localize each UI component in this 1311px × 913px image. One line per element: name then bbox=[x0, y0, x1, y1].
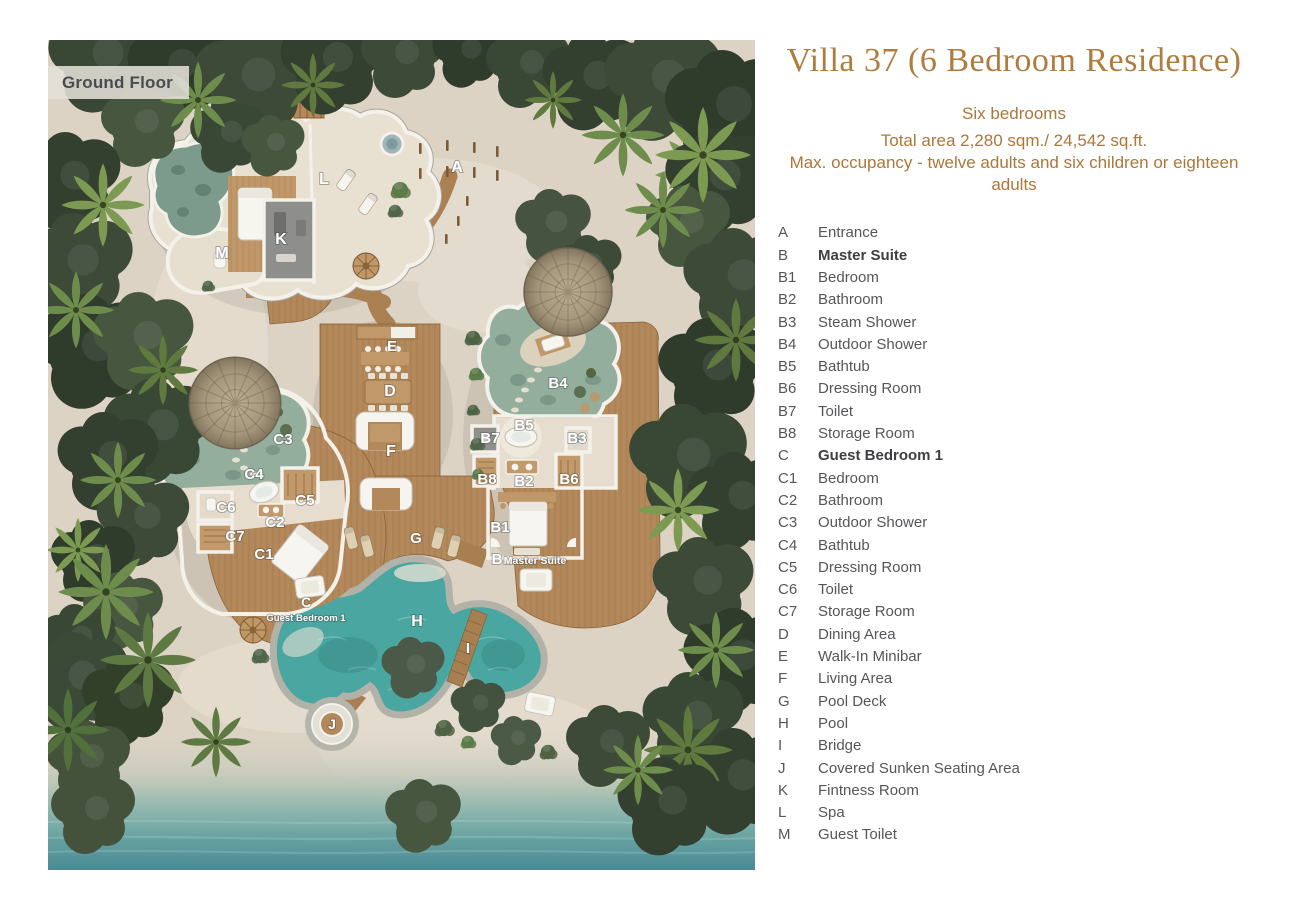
legend-label: Bathroom bbox=[818, 291, 1253, 308]
legend-row: B3 Steam Shower bbox=[778, 314, 1253, 336]
legend-label: Dining Area bbox=[818, 626, 1253, 643]
plan-label-F: F bbox=[386, 443, 396, 460]
legend-label: Fintness Room bbox=[818, 782, 1253, 799]
legend-row: B2 Bathroom bbox=[778, 291, 1253, 313]
legend-key: B6 bbox=[778, 380, 818, 397]
legend-label: Dressing Room bbox=[818, 559, 1253, 576]
subtitle-block: Six bedrooms Total area 2,280 sqm./ 24,5… bbox=[775, 103, 1253, 196]
legend-key: C5 bbox=[778, 559, 818, 576]
legend-row: C4 Bathtub bbox=[778, 537, 1253, 559]
thatch-roof-dome bbox=[189, 357, 281, 449]
plan-label-B3: B3 bbox=[567, 430, 586, 447]
plan-label-C2: C2 bbox=[265, 514, 284, 531]
legend-key: B2 bbox=[778, 291, 818, 308]
legend-label: Guest Toilet bbox=[818, 826, 1253, 843]
legend-key: F bbox=[778, 670, 818, 687]
legend-row: D Dining Area bbox=[778, 626, 1253, 648]
ground-floor-badge: Ground Floor bbox=[48, 66, 189, 99]
legend-key: I bbox=[778, 737, 818, 754]
legend-label: Dressing Room bbox=[818, 380, 1253, 397]
info-panel: Villa 37 (6 Bedroom Residence) Six bedro… bbox=[775, 42, 1253, 849]
legend-key: B1 bbox=[778, 269, 818, 286]
legend-label: Pool bbox=[818, 715, 1253, 732]
legend-row: B6 Dressing Room bbox=[778, 380, 1253, 402]
legend-key: B5 bbox=[778, 358, 818, 375]
page-title: Villa 37 (6 Bedroom Residence) bbox=[775, 42, 1253, 79]
legend-row: C7 Storage Room bbox=[778, 603, 1253, 625]
plan-label-B-sub: Master Suite bbox=[504, 555, 567, 567]
legend-key: C4 bbox=[778, 537, 818, 554]
legend-row: C2 Bathroom bbox=[778, 492, 1253, 514]
legend-label: Toilet bbox=[818, 581, 1253, 598]
legend-row: C1 Bedroom bbox=[778, 470, 1253, 492]
plan-label-C-sub: Guest Bedroom 1 bbox=[266, 613, 346, 624]
legend-row: L Spa bbox=[778, 804, 1253, 826]
legend-row: C6 Toilet bbox=[778, 581, 1253, 603]
legend-key: C1 bbox=[778, 470, 818, 487]
plan-label-C6: C6 bbox=[216, 499, 235, 516]
subtitle-line: Total area 2,280 sqm./ 24,542 sq.ft. bbox=[775, 130, 1253, 152]
plan-label-C1: C1 bbox=[254, 546, 273, 563]
legend-row: K Fintness Room bbox=[778, 782, 1253, 804]
plan-label-L: L bbox=[319, 171, 329, 188]
plan-label-B8: B8 bbox=[477, 471, 496, 488]
legend-key: B7 bbox=[778, 403, 818, 420]
legend-key: K bbox=[778, 782, 818, 799]
plan-label-H: H bbox=[411, 613, 423, 630]
legend-row: B4 Outdoor Shower bbox=[778, 336, 1253, 358]
legend-label: Storage Room bbox=[818, 603, 1253, 620]
legend-key: C6 bbox=[778, 581, 818, 598]
legend-label: Covered Sunken Seating Area bbox=[818, 760, 1253, 777]
plan-label-C5: C5 bbox=[295, 492, 314, 509]
floor-plan-svg: ALKMEDFB4B5B7B3B8B2B6B1BMaster SuiteC3C4… bbox=[48, 40, 755, 870]
legend-row: G Pool Deck bbox=[778, 693, 1253, 715]
legend-key: C bbox=[778, 447, 818, 464]
plan-label-B4: B4 bbox=[548, 375, 568, 392]
plan-label-C4: C4 bbox=[244, 466, 264, 483]
plan-label-B7: B7 bbox=[480, 430, 499, 447]
legend-label: Bridge bbox=[818, 737, 1253, 754]
legend-row: J Covered Sunken Seating Area bbox=[778, 760, 1253, 782]
legend-label: Entrance bbox=[818, 224, 1253, 241]
plan-label-J: J bbox=[328, 716, 336, 732]
legend-row: B7 Toilet bbox=[778, 403, 1253, 425]
plan-label-A: A bbox=[451, 159, 463, 176]
legend-label: Toilet bbox=[818, 403, 1253, 420]
legend-key: C7 bbox=[778, 603, 818, 620]
legend-label: Spa bbox=[818, 804, 1253, 821]
legend-key: L bbox=[778, 804, 818, 821]
villa-floorplan-page: ALKMEDFB4B5B7B3B8B2B6B1BMaster SuiteC3C4… bbox=[0, 0, 1311, 913]
legend-label: Bedroom bbox=[818, 470, 1253, 487]
plan-label-B1: B1 bbox=[490, 519, 509, 536]
legend-key: B bbox=[778, 247, 818, 264]
subtitle-line: Six bedrooms bbox=[775, 103, 1253, 125]
plan-label-D: D bbox=[384, 383, 396, 400]
plan-label-B5: B5 bbox=[514, 417, 533, 434]
plan-label-B2: B2 bbox=[514, 473, 533, 490]
legend-label: Bathtub bbox=[818, 358, 1253, 375]
legend-label: Living Area bbox=[818, 670, 1253, 687]
legend-key: M bbox=[778, 826, 818, 843]
legend-label: Bathroom bbox=[818, 492, 1253, 509]
plan-label-E: E bbox=[387, 338, 397, 355]
legend-row: B Master Suite bbox=[778, 247, 1253, 269]
legend-row: C Guest Bedroom 1 bbox=[778, 447, 1253, 469]
legend-row: F Living Area bbox=[778, 670, 1253, 692]
legend-row: C5 Dressing Room bbox=[778, 559, 1253, 581]
legend-label: Master Suite bbox=[818, 247, 1253, 264]
plan-label-B6: B6 bbox=[559, 471, 578, 488]
legend-key: E bbox=[778, 648, 818, 665]
legend-label: Bathtub bbox=[818, 537, 1253, 554]
thatch-roof-dome bbox=[524, 248, 612, 336]
legend-row: C3 Outdoor Shower bbox=[778, 514, 1253, 536]
legend-row: E Walk-In Minibar bbox=[778, 648, 1253, 670]
plan-label-K: K bbox=[275, 231, 287, 248]
legend-label: Outdoor Shower bbox=[818, 514, 1253, 531]
legend-row: A Entrance bbox=[778, 224, 1253, 246]
legend-label: Outdoor Shower bbox=[818, 336, 1253, 353]
legend-key: D bbox=[778, 626, 818, 643]
legend-key: B3 bbox=[778, 314, 818, 331]
legend-key: H bbox=[778, 715, 818, 732]
plan-label-B: B bbox=[492, 551, 503, 568]
legend-key: G bbox=[778, 693, 818, 710]
floor-plan-image: ALKMEDFB4B5B7B3B8B2B6B1BMaster SuiteC3C4… bbox=[48, 40, 755, 870]
legend-row: M Guest Toilet bbox=[778, 826, 1253, 848]
ground-floor-label: Ground Floor bbox=[62, 73, 173, 93]
plan-label-C: C bbox=[301, 594, 311, 610]
plan-label-C3: C3 bbox=[273, 431, 292, 448]
legend-list: A Entrance B Master Suite B1 Bedroom B2 … bbox=[775, 224, 1253, 848]
legend-label: Walk-In Minibar bbox=[818, 648, 1253, 665]
plan-label-I: I bbox=[466, 640, 470, 657]
legend-row: I Bridge bbox=[778, 737, 1253, 759]
legend-label: Steam Shower bbox=[818, 314, 1253, 331]
legend-key: B8 bbox=[778, 425, 818, 442]
legend-label: Storage Room bbox=[818, 425, 1253, 442]
legend-label: Guest Bedroom 1 bbox=[818, 447, 1253, 464]
legend-row: B1 Bedroom bbox=[778, 269, 1253, 291]
legend-key: C2 bbox=[778, 492, 818, 509]
plan-label-G: G bbox=[410, 530, 422, 547]
subtitle-line: Max. occupancy - twelve adults and six c… bbox=[775, 152, 1253, 196]
legend-row: H Pool bbox=[778, 715, 1253, 737]
legend-key: B4 bbox=[778, 336, 818, 353]
legend-label: Bedroom bbox=[818, 269, 1253, 286]
legend-row: B8 Storage Room bbox=[778, 425, 1253, 447]
legend-key: C3 bbox=[778, 514, 818, 531]
legend-key: A bbox=[778, 224, 818, 241]
plan-label-M: M bbox=[215, 245, 228, 262]
legend-label: Pool Deck bbox=[818, 693, 1253, 710]
legend-key: J bbox=[778, 760, 818, 777]
legend-row: B5 Bathtub bbox=[778, 358, 1253, 380]
plan-label-C7: C7 bbox=[225, 528, 244, 545]
